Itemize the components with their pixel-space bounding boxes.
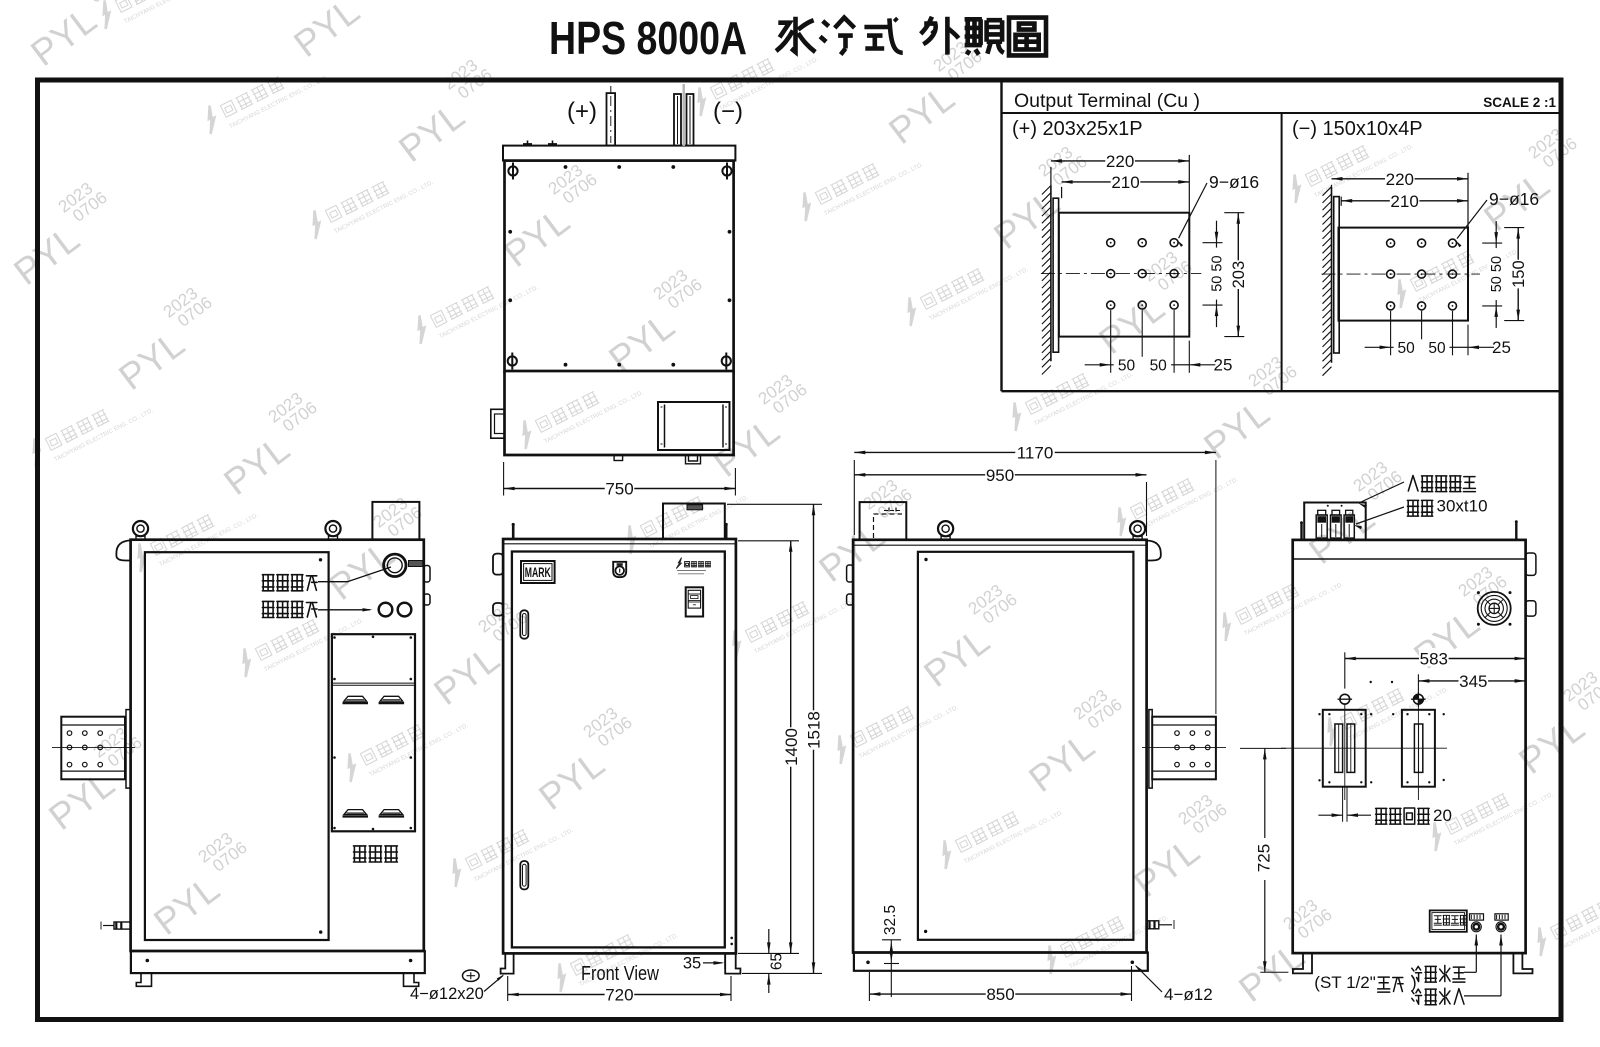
- svg-text:720: 720: [605, 986, 633, 1005]
- svg-text:9−ø16: 9−ø16: [1489, 189, 1539, 209]
- svg-text:32.5: 32.5: [882, 905, 899, 935]
- svg-text:25: 25: [1492, 338, 1511, 357]
- svg-text:50 50: 50 50: [1210, 255, 1226, 291]
- svg-text:MARK: MARK: [525, 565, 551, 580]
- svg-text:210: 210: [1390, 192, 1418, 211]
- svg-text:50: 50: [1397, 340, 1415, 357]
- svg-text:HPS 8000A: HPS 8000A: [549, 12, 747, 64]
- svg-text:50: 50: [1428, 340, 1446, 357]
- svg-text:(ST 1/2": (ST 1/2": [1314, 973, 1375, 992]
- svg-text:50 50: 50 50: [1489, 256, 1505, 292]
- svg-text:(+): (+): [567, 98, 597, 125]
- svg-text:750: 750: [605, 480, 633, 499]
- svg-text:4−ø12x20: 4−ø12x20: [410, 985, 484, 1003]
- svg-text:Front View: Front View: [581, 963, 659, 985]
- svg-text:20: 20: [1433, 806, 1452, 825]
- svg-text:(−) 150x10x4P: (−) 150x10x4P: [1292, 118, 1423, 140]
- svg-text:(+) 203x25x1P: (+) 203x25x1P: [1012, 118, 1143, 140]
- svg-text:1400: 1400: [782, 728, 801, 766]
- svg-text:50: 50: [1118, 357, 1136, 374]
- svg-text:9−ø16: 9−ø16: [1209, 172, 1259, 192]
- svg-text:1170: 1170: [1017, 444, 1054, 463]
- svg-text:25: 25: [1214, 355, 1233, 374]
- svg-text:725: 725: [1255, 844, 1274, 872]
- svg-text:SCALE 2 :1: SCALE 2 :1: [1483, 95, 1556, 110]
- svg-text:): ): [1411, 973, 1417, 992]
- svg-text:850: 850: [986, 985, 1014, 1004]
- svg-text:4−ø12: 4−ø12: [1164, 985, 1213, 1004]
- svg-text:950: 950: [986, 466, 1014, 485]
- svg-text:35: 35: [683, 955, 701, 973]
- svg-text:65: 65: [769, 953, 786, 970]
- svg-text:1518: 1518: [805, 711, 824, 749]
- svg-text:210: 210: [1111, 173, 1139, 192]
- svg-text:30xt10: 30xt10: [1437, 497, 1488, 516]
- svg-text:220: 220: [1386, 170, 1414, 189]
- svg-text:220: 220: [1106, 152, 1134, 171]
- svg-text:150: 150: [1510, 260, 1528, 288]
- svg-text:(−): (−): [713, 98, 743, 125]
- svg-text:50: 50: [1150, 357, 1168, 374]
- svg-text:203: 203: [1230, 261, 1248, 289]
- svg-text:Output Terminal (Cu ): Output Terminal (Cu ): [1014, 90, 1200, 112]
- svg-text:345: 345: [1459, 672, 1487, 691]
- svg-text:583: 583: [1420, 650, 1448, 669]
